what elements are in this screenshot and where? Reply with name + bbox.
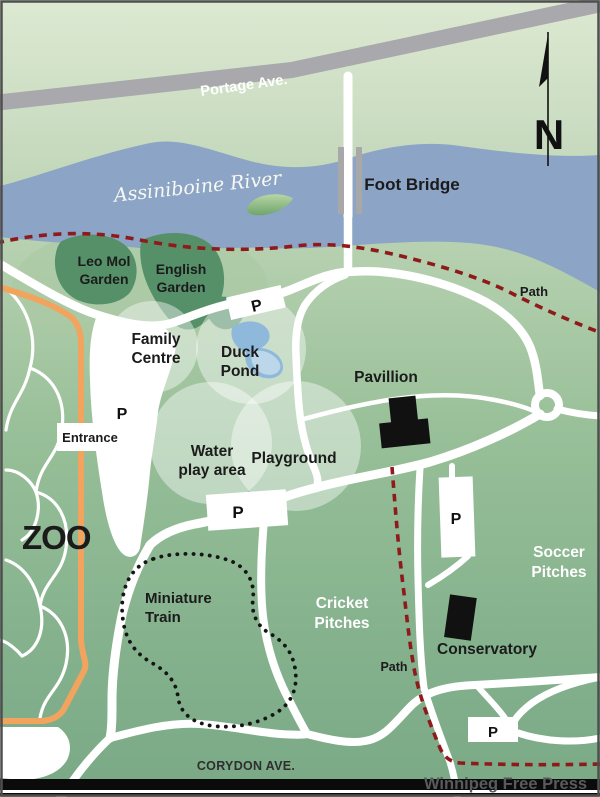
svg-text:Water: Water [191, 443, 234, 460]
parking-label-central: P [232, 503, 243, 522]
conservatory-label: Conservatory [437, 641, 537, 658]
svg-text:Train: Train [145, 609, 181, 626]
svg-text:Family: Family [131, 331, 180, 348]
foot-bridge-label: Foot Bridge [364, 175, 459, 194]
svg-text:Miniature: Miniature [145, 590, 212, 607]
corydon-ave-label: CORYDON AVE. [197, 759, 295, 773]
svg-text:Soccer: Soccer [533, 544, 585, 561]
svg-text:Garden: Garden [156, 279, 205, 295]
parking-label-entrance: P [117, 406, 128, 423]
playground-label: Playground [251, 450, 336, 467]
svg-text:Pitches: Pitches [531, 564, 586, 581]
svg-text:Pond: Pond [221, 363, 260, 380]
entrance-label: Entrance [62, 430, 118, 445]
path-upper-label: Path [520, 284, 548, 299]
credit-label: Winnipeg Free Press [424, 775, 587, 793]
map-canvas: N Portage Ave. Assiniboine River Foot Br… [0, 0, 600, 797]
svg-text:Garden: Garden [79, 271, 128, 287]
compass-north-label: N [534, 111, 564, 158]
svg-text:play area: play area [178, 462, 246, 479]
svg-text:Duck: Duck [221, 344, 259, 361]
parking-label-soccer: P [451, 511, 462, 528]
foot-bridge-abutment-left [338, 147, 344, 214]
pavillion-label: Pavillion [354, 369, 418, 386]
path-lower-label: Path [380, 660, 407, 674]
svg-text:Leo Mol: Leo Mol [78, 253, 131, 269]
parking-lot-central [206, 489, 288, 530]
svg-text:Centre: Centre [131, 350, 180, 367]
foot-bridge-abutment-right [356, 147, 362, 214]
park-map: N Portage Ave. Assiniboine River Foot Br… [0, 0, 600, 797]
zoo-label: ZOO [22, 519, 91, 556]
svg-text:Cricket: Cricket [316, 595, 369, 612]
svg-text:English: English [156, 261, 207, 277]
parking-label-southeast: P [488, 724, 498, 741]
svg-text:Pitches: Pitches [314, 615, 369, 632]
